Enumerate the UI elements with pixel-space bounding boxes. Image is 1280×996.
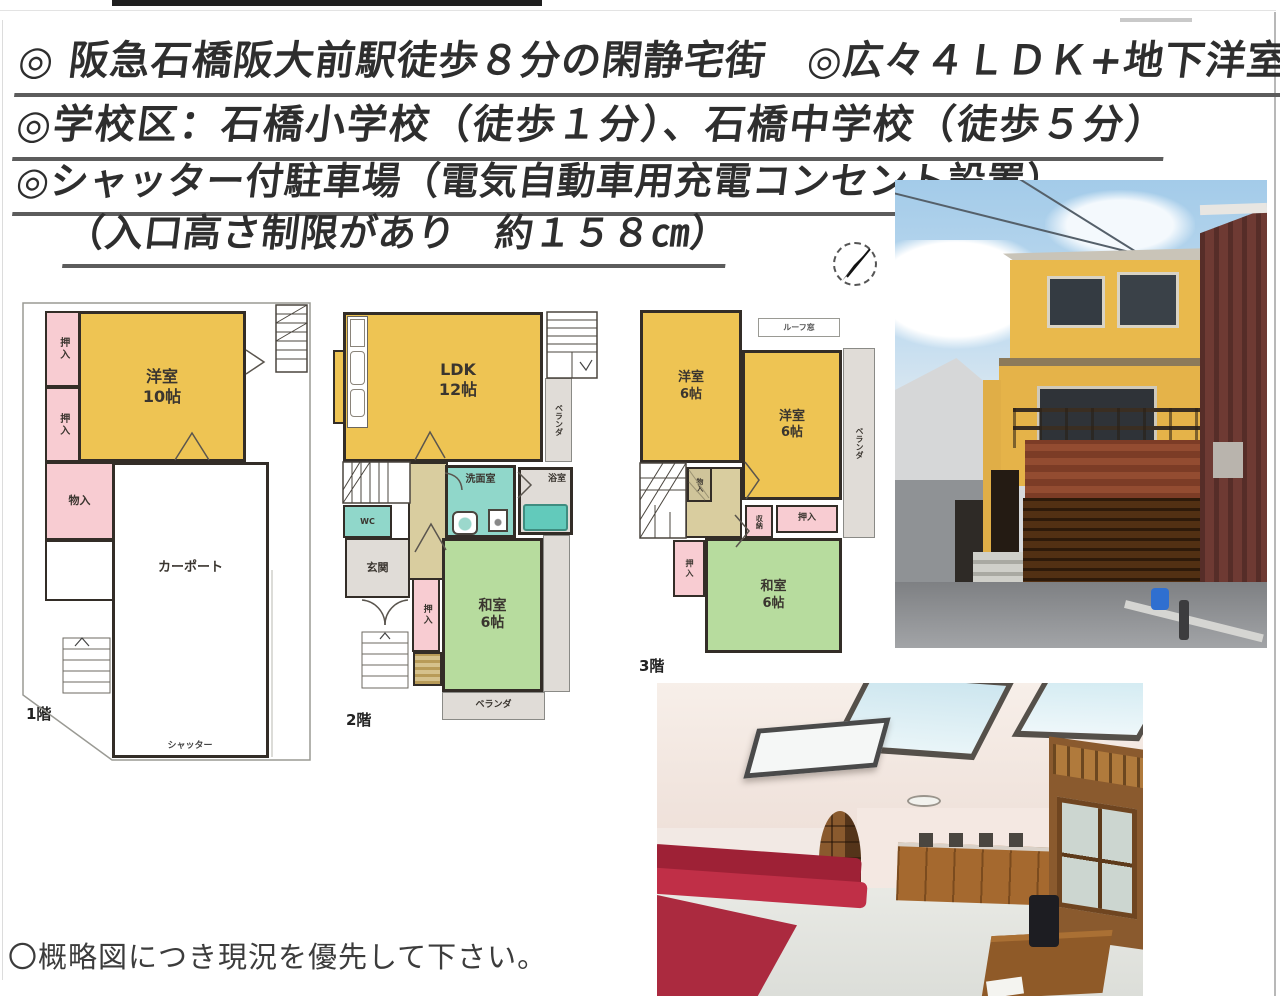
f3-veranda: ベランダ xyxy=(843,348,875,538)
f2-floor-label: 2階 xyxy=(346,709,371,730)
f2-fridge-box xyxy=(350,319,365,347)
photo-counter-items xyxy=(919,833,1039,847)
f1-closet-a-label: 押入 xyxy=(56,337,69,361)
f2-veranda-bottom: ベランダ xyxy=(442,692,545,720)
page-right-border xyxy=(1274,12,1276,996)
f2-open-void xyxy=(413,652,442,686)
photo-black-object xyxy=(1029,895,1059,947)
f2-side-eaves xyxy=(543,535,570,692)
f2-closet-label: 押入 xyxy=(420,604,431,626)
photo-round-light xyxy=(907,795,941,807)
photo-garage-door xyxy=(1023,498,1219,590)
f1-carport: カーポート xyxy=(112,462,269,758)
f2-veranda-side: ベランダ xyxy=(545,378,572,462)
f3-roof-window: ルーフ窓 xyxy=(758,318,840,337)
headline-1: ◎ 阪急石橋阪大前駅徒歩８分の閑静宅街 ◎広々４ＬＤＫ+地下洋室！ xyxy=(14,28,1280,97)
photo-entry-dark xyxy=(991,470,1019,560)
f2-washer-icon xyxy=(452,511,478,535)
headline-4: （入口高さ制限があり 約１５８㎝） xyxy=(62,202,733,268)
f1-empty-cell xyxy=(45,540,114,601)
photo-bollard xyxy=(1179,600,1189,640)
f2-closet: 押入 xyxy=(412,578,440,652)
f3-closet-left-label: 押入 xyxy=(684,559,694,579)
f1-western-room-10: 洋室 10帖 xyxy=(78,311,246,462)
grey-dash-artifact xyxy=(1120,18,1192,22)
page-left-hairline xyxy=(2,20,3,980)
f1-closet-a: 押入 xyxy=(45,311,80,387)
f2-entrance: 玄関 xyxy=(345,538,410,598)
f2-ldk: LDK 12帖 xyxy=(343,312,543,462)
north-arrow-glyph xyxy=(835,244,879,288)
photo-house-3f-window-l xyxy=(1047,276,1105,328)
f2-sink-box xyxy=(350,351,365,385)
f3-storage-small-label: 物入 xyxy=(695,478,704,492)
f1-closet-b-label: 押入 xyxy=(56,413,69,437)
photo-window-pane xyxy=(1057,797,1137,920)
f2-bathtub xyxy=(523,504,568,531)
f3-western-room-b: 洋室 6帖 xyxy=(742,350,842,500)
f2-kitchen-counter xyxy=(347,316,368,428)
f2-sink-icon xyxy=(488,509,508,532)
f3-shuno-label: 収納 xyxy=(755,515,764,529)
f3-floor-label: 3階 xyxy=(639,655,664,676)
photo-house-eaves xyxy=(999,358,1215,366)
top-redaction-bar xyxy=(112,0,542,6)
photo-right-building xyxy=(1200,208,1267,628)
f2-wc: WC xyxy=(343,505,392,538)
f2-japanese-room: 和室 6帖 xyxy=(442,538,543,692)
photo-blue-bucket xyxy=(1151,588,1169,610)
photo-road xyxy=(895,582,1267,648)
flyer-page: ◎ 阪急石橋阪大前駅徒歩８分の閑静宅街 ◎広々４ＬＤＫ+地下洋室！ ◎学校区：石… xyxy=(0,0,1280,996)
f1-closet-b: 押入 xyxy=(45,387,80,462)
f2-kitchen-side xyxy=(333,350,345,424)
photo-house-3f-window-r xyxy=(1117,272,1179,328)
f1-floor-label: 1階 xyxy=(26,703,51,724)
f2-stove-box xyxy=(350,389,365,417)
f3-closet-left: 押入 xyxy=(673,540,705,597)
f3-veranda-label: ベランダ xyxy=(854,427,864,459)
disclaimer-note: 〇概略図につき現況を優先して下さい。 xyxy=(8,934,547,976)
f1-storage: 物入 xyxy=(45,462,114,540)
exterior-photo xyxy=(895,180,1267,648)
f3-shuno: 収納 xyxy=(745,505,773,538)
f3-storage-small: 物入 xyxy=(687,467,712,502)
f2-veranda-side-label: ベランダ xyxy=(554,404,564,436)
f1-shutter-label: シャッター xyxy=(145,738,235,751)
north-arrow-icon xyxy=(833,242,877,286)
page-top-hairline xyxy=(0,10,1276,11)
f3-closet-right: 押入 xyxy=(776,505,838,533)
f3-japanese-room: 和室 6帖 xyxy=(705,538,842,653)
photo-right-window xyxy=(1213,442,1243,478)
interior-photo xyxy=(657,683,1143,996)
f3-western-room-a: 洋室 6帖 xyxy=(640,310,742,463)
photo-brick-balcony-wall xyxy=(1025,440,1215,500)
